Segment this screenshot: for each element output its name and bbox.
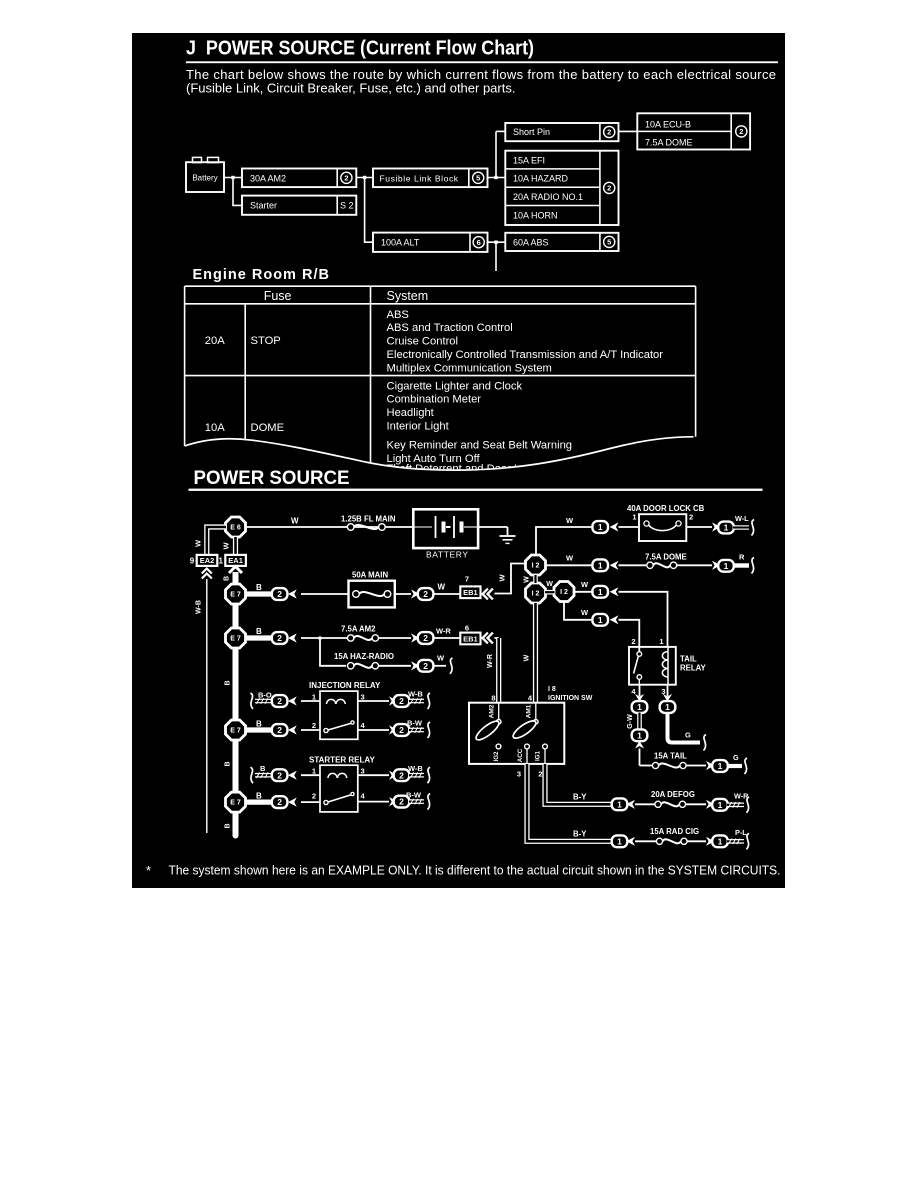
svg-text:G-W: G-W <box>627 714 634 729</box>
svg-text:20A RADIO NO.1: 20A RADIO NO.1 <box>513 192 583 202</box>
svg-text:20A: 20A <box>205 335 225 347</box>
svg-text:W-R: W-R <box>436 627 451 636</box>
svg-text:10A ECU-B: 10A ECU-B <box>645 119 691 129</box>
svg-text:E 7: E 7 <box>230 800 241 807</box>
svg-text:B: B <box>256 791 262 800</box>
svg-text:W: W <box>566 516 574 525</box>
svg-text:Combination Meter: Combination Meter <box>387 394 482 406</box>
svg-text:RELAY: RELAY <box>680 664 707 673</box>
svg-text:2: 2 <box>277 797 282 807</box>
svg-text:B: B <box>225 680 232 685</box>
svg-text:2: 2 <box>689 513 693 522</box>
svg-text:1: 1 <box>724 523 729 533</box>
svg-text:W: W <box>566 554 574 563</box>
svg-text:Fuse: Fuse <box>264 289 292 303</box>
svg-text:B-W: B-W <box>406 790 422 799</box>
svg-text:30A AM2: 30A AM2 <box>250 173 286 183</box>
svg-text:2: 2 <box>423 589 428 599</box>
svg-text:ACC: ACC <box>517 748 524 762</box>
svg-text:6: 6 <box>477 238 481 247</box>
svg-text:G: G <box>733 753 739 762</box>
svg-text:1: 1 <box>632 513 636 522</box>
svg-text:G: G <box>685 730 691 739</box>
svg-text:I 2: I 2 <box>560 589 568 596</box>
svg-text:2: 2 <box>312 721 316 730</box>
svg-text:EA1: EA1 <box>228 556 243 565</box>
svg-text:W: W <box>291 517 299 526</box>
svg-text:W-B: W-B <box>408 690 423 699</box>
svg-text:10A HORN: 10A HORN <box>513 210 558 220</box>
svg-text:IG2: IG2 <box>493 751 500 762</box>
svg-text:Starter: Starter <box>250 201 277 211</box>
svg-text:STOP: STOP <box>251 335 281 347</box>
svg-text:2: 2 <box>312 792 316 801</box>
svg-text:W: W <box>438 583 446 592</box>
svg-text:2: 2 <box>423 661 428 671</box>
svg-text:Engine Room R/B: Engine Room R/B <box>193 267 330 283</box>
svg-text:S 2: S 2 <box>340 201 354 211</box>
svg-text:1: 1 <box>718 761 723 771</box>
svg-text:100A ALT: 100A ALT <box>381 238 420 248</box>
svg-text:Fusible Link Block: Fusible Link Block <box>380 173 459 183</box>
svg-text:5: 5 <box>607 238 611 247</box>
svg-text:E 7: E 7 <box>230 636 241 643</box>
svg-text:6: 6 <box>465 624 469 633</box>
svg-text:2: 2 <box>631 637 635 646</box>
svg-text:1: 1 <box>219 557 224 566</box>
svg-text:2: 2 <box>277 633 282 643</box>
svg-text:W-R: W-R <box>487 654 494 668</box>
svg-text:9: 9 <box>190 557 195 566</box>
svg-text:1: 1 <box>598 560 603 570</box>
svg-text:B-Y: B-Y <box>573 829 587 838</box>
svg-text:1: 1 <box>617 836 622 846</box>
svg-text:2: 2 <box>399 725 404 735</box>
svg-text:B-O: B-O <box>258 690 272 699</box>
svg-text:B-Y: B-Y <box>573 792 587 801</box>
svg-text:1: 1 <box>312 766 316 775</box>
svg-text:Key Reminder and Seat Belt War: Key Reminder and Seat Belt Warning <box>387 439 573 451</box>
svg-text:W: W <box>437 654 445 663</box>
svg-text:EB1: EB1 <box>463 634 478 643</box>
svg-text:8: 8 <box>491 693 495 702</box>
svg-text:W: W <box>524 576 531 583</box>
svg-text:2: 2 <box>399 696 404 706</box>
svg-text:POWER SOURCE: POWER SOURCE <box>194 467 350 489</box>
svg-text:E 7: E 7 <box>230 592 241 599</box>
svg-text:W-R: W-R <box>734 792 749 801</box>
svg-text:B: B <box>260 764 266 773</box>
svg-text:20A DEFOG: 20A DEFOG <box>651 790 695 799</box>
svg-text:STARTER RELAY: STARTER RELAY <box>309 755 375 764</box>
svg-text:TAIL: TAIL <box>680 655 697 664</box>
svg-text:1: 1 <box>637 730 642 740</box>
svg-text:1: 1 <box>617 799 622 809</box>
svg-text:W-L: W-L <box>735 514 749 523</box>
svg-text:System: System <box>387 289 429 303</box>
svg-text:E 6: E 6 <box>230 525 241 532</box>
svg-text:2: 2 <box>607 184 611 193</box>
svg-text:2: 2 <box>607 128 611 137</box>
svg-text:2: 2 <box>344 174 348 183</box>
svg-text:B: B <box>256 719 262 728</box>
svg-text:2: 2 <box>277 696 282 706</box>
svg-text:1: 1 <box>665 702 670 712</box>
svg-text:1: 1 <box>659 637 663 646</box>
svg-text:B: B <box>225 761 232 766</box>
svg-text:2: 2 <box>423 633 428 643</box>
svg-text:60A ABS: 60A ABS <box>513 238 549 248</box>
svg-text:2: 2 <box>399 770 404 780</box>
svg-text:B: B <box>225 823 232 828</box>
svg-text:Multiplex Communication System: Multiplex Communication System <box>387 362 552 374</box>
svg-text:W: W <box>546 581 553 588</box>
svg-text:2: 2 <box>538 770 542 779</box>
svg-text:BATTERY: BATTERY <box>426 550 469 560</box>
svg-text:7.5A DOME: 7.5A DOME <box>645 552 687 561</box>
svg-text:Cruise Control: Cruise Control <box>387 336 459 348</box>
svg-text:1: 1 <box>637 702 642 712</box>
svg-text:1: 1 <box>598 522 603 532</box>
svg-text:I 8: I 8 <box>548 686 556 693</box>
svg-text:R: R <box>739 552 745 561</box>
svg-text:B-W: B-W <box>407 719 423 728</box>
svg-text:3: 3 <box>361 692 365 701</box>
svg-text:2: 2 <box>277 725 282 735</box>
svg-text:(Fusible Link, Circuit Breaker: (Fusible Link, Circuit Breaker, Fuse, et… <box>186 81 515 96</box>
svg-text:Headlight: Headlight <box>387 407 435 419</box>
svg-text:W-B: W-B <box>196 600 203 614</box>
svg-text:I 2: I 2 <box>532 591 540 598</box>
svg-text:AM2: AM2 <box>489 704 496 718</box>
svg-text:1.25B FL MAIN: 1.25B FL MAIN <box>341 515 396 524</box>
svg-text:2: 2 <box>399 797 404 807</box>
svg-text:J POWER SOURCE (Current Flow: J POWER SOURCE (Current Flow Chart) <box>186 37 534 60</box>
svg-text:Interior Light: Interior Light <box>387 421 450 433</box>
svg-text:The system shown here is an EX: The system shown here is an EXAMPLE ONLY… <box>169 863 781 878</box>
svg-text:2: 2 <box>277 589 282 599</box>
svg-text:I 2: I 2 <box>532 563 540 570</box>
svg-text:5: 5 <box>476 174 480 183</box>
svg-text:1: 1 <box>598 587 603 597</box>
svg-text:15A EFI: 15A EFI <box>513 155 545 165</box>
svg-text:W: W <box>581 580 589 589</box>
svg-text:7.5A DOME: 7.5A DOME <box>645 137 693 147</box>
svg-text:INJECTION RELAY: INJECTION RELAY <box>309 681 381 690</box>
svg-text:3: 3 <box>361 766 365 775</box>
svg-text:15A TAIL: 15A TAIL <box>654 752 687 761</box>
svg-text:B: B <box>256 627 262 636</box>
svg-text:P-L: P-L <box>735 828 747 837</box>
svg-text:AM1: AM1 <box>526 704 533 718</box>
svg-text:W-B: W-B <box>408 764 423 773</box>
svg-text:7: 7 <box>465 575 469 584</box>
svg-text:W: W <box>524 654 531 661</box>
svg-text:2: 2 <box>739 127 743 136</box>
svg-text:The chart below shows the rout: The chart below shows the route by which… <box>186 67 776 82</box>
svg-text:IGNITION SW: IGNITION SW <box>548 695 593 702</box>
svg-text:W: W <box>222 542 231 550</box>
svg-text:W: W <box>194 539 203 547</box>
svg-text:Short Pin: Short Pin <box>513 127 550 137</box>
svg-text:DOME: DOME <box>251 422 285 434</box>
svg-text:1: 1 <box>718 836 723 846</box>
svg-text:3: 3 <box>517 770 521 779</box>
svg-text:Cigarette Lighter and Clock: Cigarette Lighter and Clock <box>387 380 523 392</box>
svg-text:1: 1 <box>598 615 603 625</box>
svg-text:10A HAZARD: 10A HAZARD <box>513 174 569 184</box>
svg-text:*: * <box>146 863 151 878</box>
svg-text:ABS: ABS <box>387 309 409 321</box>
svg-text:1: 1 <box>718 800 723 810</box>
svg-text:1: 1 <box>724 561 729 571</box>
svg-text:ABS and Traction Control: ABS and Traction Control <box>387 322 513 334</box>
svg-text:W: W <box>581 608 589 617</box>
svg-text:15A RAD CIG: 15A RAD CIG <box>650 827 699 836</box>
svg-text:E 7: E 7 <box>230 728 241 735</box>
svg-text:IG1: IG1 <box>535 750 542 761</box>
svg-text:B: B <box>224 576 231 581</box>
svg-text:EB1: EB1 <box>463 588 478 597</box>
svg-text:50A MAIN: 50A MAIN <box>352 571 388 580</box>
svg-text:Electronically Controlled Tran: Electronically Controlled Transmission a… <box>387 349 664 361</box>
svg-text:1: 1 <box>312 692 316 701</box>
svg-text:Battery: Battery <box>192 174 217 183</box>
svg-text:EA2: EA2 <box>200 556 215 565</box>
svg-text:10A: 10A <box>205 422 225 434</box>
svg-text:7.5A AM2: 7.5A AM2 <box>341 625 376 634</box>
svg-text:B: B <box>256 583 262 592</box>
svg-text:W: W <box>498 574 507 582</box>
svg-text:2: 2 <box>277 770 282 780</box>
svg-text:15A HAZ-RADIO: 15A HAZ-RADIO <box>334 652 394 661</box>
